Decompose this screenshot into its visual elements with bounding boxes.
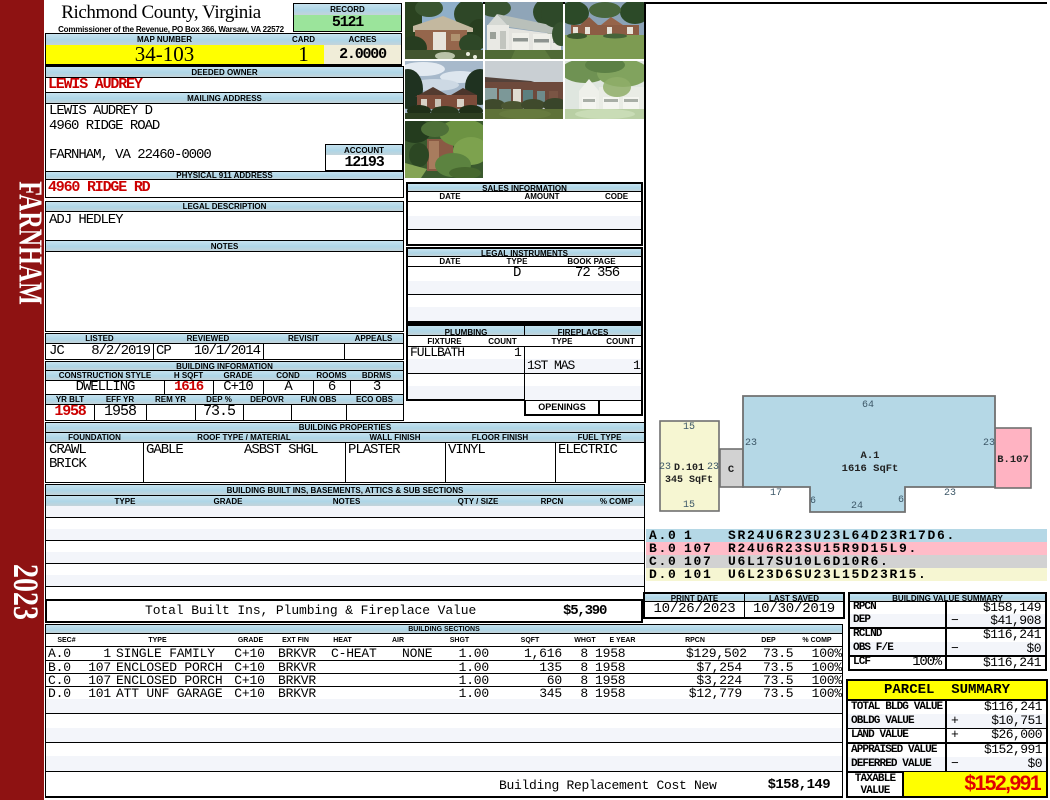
svg-text:15: 15 — [683, 500, 695, 511]
svg-text:23: 23 — [659, 462, 671, 473]
svg-text:6: 6 — [810, 496, 816, 507]
svg-text:23: 23 — [983, 438, 995, 449]
svg-text:C: C — [728, 464, 735, 476]
svg-text:A.1: A.1 — [861, 450, 880, 462]
svg-text:17: 17 — [770, 488, 782, 499]
svg-text:23: 23 — [707, 462, 719, 473]
svg-text:23: 23 — [944, 488, 956, 499]
svg-text:64: 64 — [862, 400, 874, 411]
svg-text:B.107: B.107 — [997, 454, 1029, 466]
svg-text:15: 15 — [683, 422, 695, 433]
svg-text:345 SqFt: 345 SqFt — [665, 475, 713, 486]
svg-text:6: 6 — [898, 495, 904, 506]
svg-text:24: 24 — [851, 501, 863, 512]
svg-text:D.101: D.101 — [674, 463, 704, 474]
svg-text:1616 SqFt: 1616 SqFt — [842, 463, 899, 475]
svg-text:23: 23 — [745, 438, 757, 449]
